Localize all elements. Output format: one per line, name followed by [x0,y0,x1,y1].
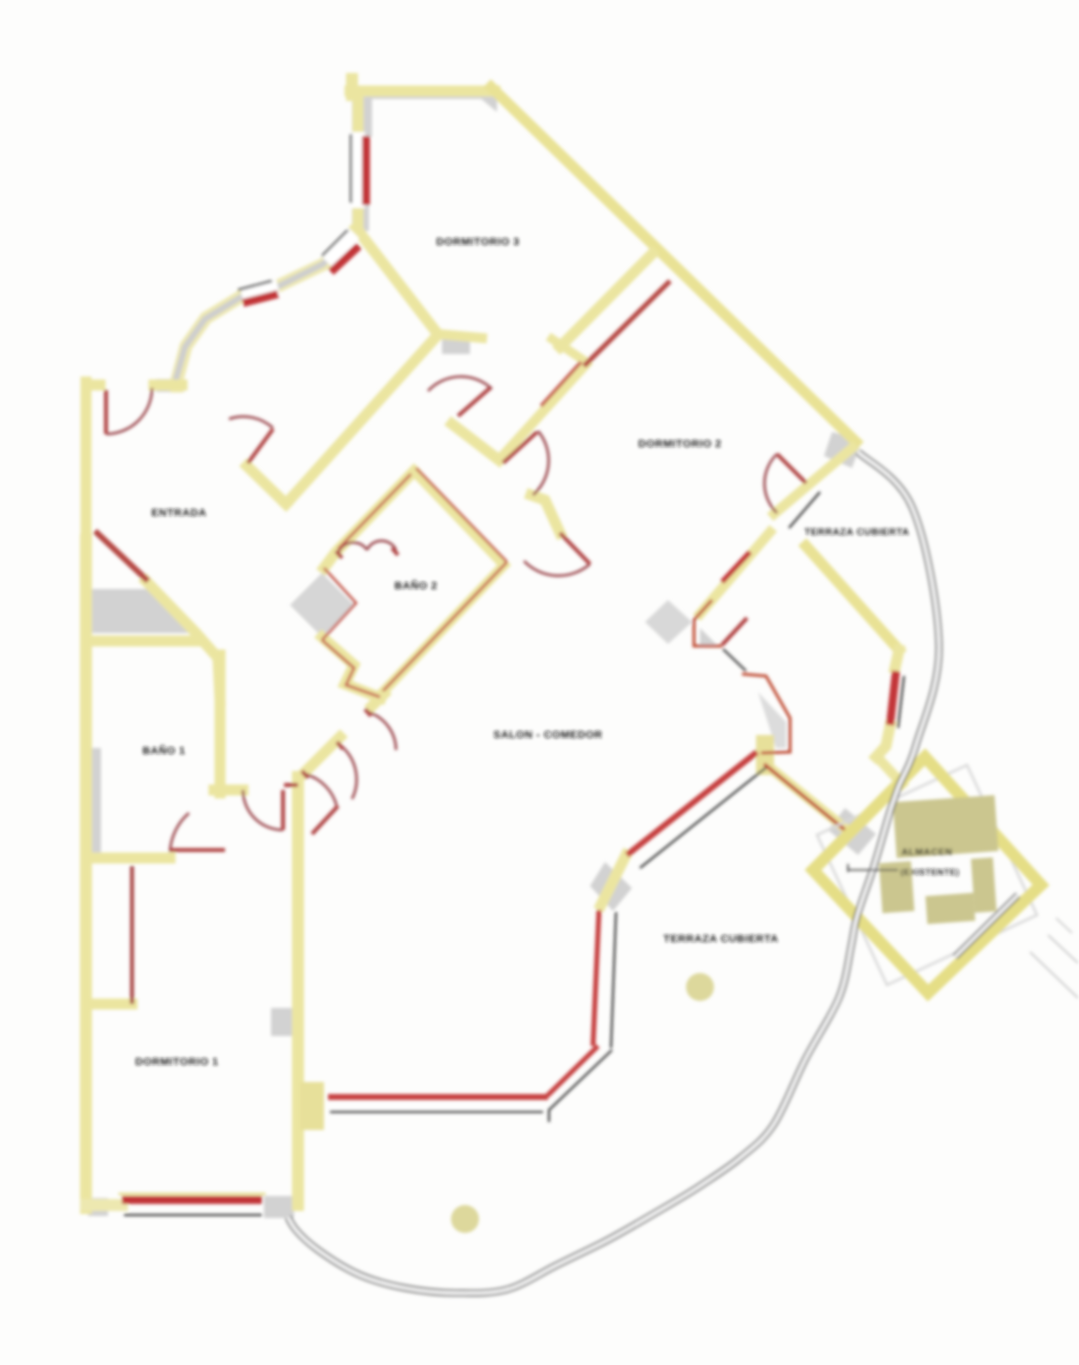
svg-text:DORMITORIO 3: DORMITORIO 3 [436,236,519,248]
svg-text:SALON - COMEDOR: SALON - COMEDOR [493,729,602,741]
svg-text:ALMACEN: ALMACEN [901,847,952,858]
svg-text:DORMITORIO 2: DORMITORIO 2 [638,438,721,450]
svg-text:(EXISTENTE): (EXISTENTE) [901,867,960,877]
svg-text:BAÑO 1: BAÑO 1 [143,744,186,757]
svg-text:TERRAZA CUBIERTA: TERRAZA CUBIERTA [664,933,779,945]
svg-text:DORMITORIO 1: DORMITORIO 1 [135,1056,218,1068]
svg-text:TERRAZA CUBIERTA: TERRAZA CUBIERTA [805,527,910,538]
svg-text:ENTRADA: ENTRADA [151,507,206,519]
svg-text:BAÑO 2: BAÑO 2 [395,579,438,592]
